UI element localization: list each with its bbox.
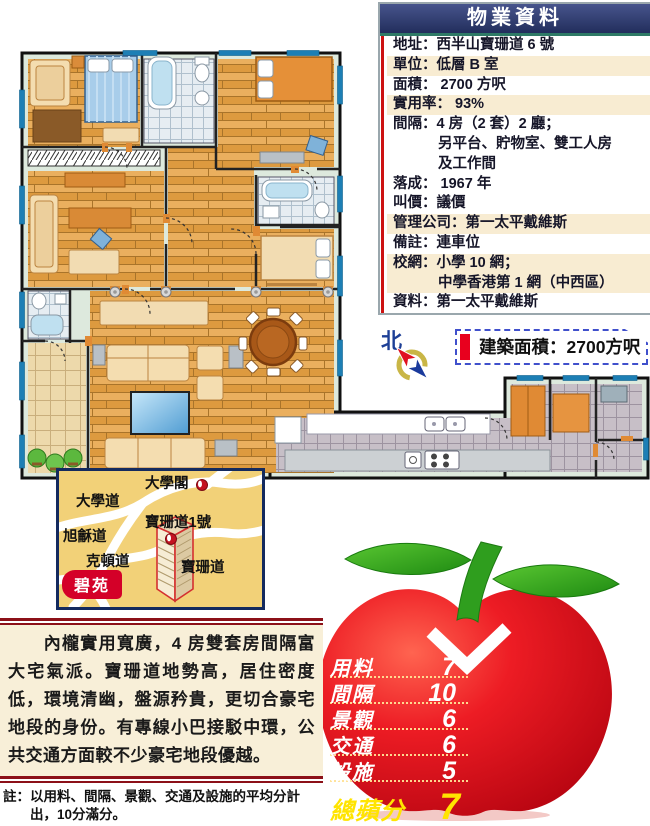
score-value: 7	[442, 653, 468, 682]
north-indicator: 北	[379, 325, 435, 389]
top-divider	[0, 618, 323, 625]
table-row-unit: 單位：低層 B 室	[387, 56, 650, 76]
score-value: 5	[442, 757, 468, 786]
table-row-price: 叫價：議價	[387, 194, 650, 214]
score-row-layout: 間隔 10	[330, 678, 468, 704]
total-score-row: 總蘋分 7	[330, 786, 468, 826]
score-value: 6	[442, 705, 468, 734]
score-row-facilities: 設施 5	[330, 756, 468, 782]
table-row-school-net-2: 中學香港第 1 網（中西區）	[387, 274, 650, 294]
score-list: 用料 7 間隔 10 景觀 6 交通 6 設施 5 總蘋分 7	[330, 652, 468, 826]
score-value: 6	[442, 731, 468, 760]
table-row-source: 資料：第一太平戴維斯	[387, 293, 650, 313]
gross-area-badge: 建築面積：2700方呎	[455, 329, 648, 365]
map-label-university-drive: 大學道	[76, 490, 120, 511]
table-row-layout-3: 及工作間	[387, 155, 650, 175]
score-label: 間隔	[330, 678, 374, 707]
table-row-efficiency: 實用率： 93%	[387, 95, 650, 115]
compass-icon	[389, 340, 435, 386]
review-body: 內櫳實用寬廣，4 房雙套房間隔富大宅氣派。寶珊道地勢高，居住密度低，環境清幽，盤…	[0, 625, 323, 776]
map-label-kotewall-road: 旭龢道	[63, 525, 107, 546]
map-label-clifton-road: 克頓道	[86, 550, 130, 571]
score-label: 景觀	[330, 704, 374, 733]
score-label: 交通	[330, 730, 374, 759]
page: 物業資料 地址：西半山寶珊道 6 號 單位：低層 B 室 面積： 2700 方呎…	[0, 0, 650, 826]
table-title: 物業資料	[380, 4, 650, 36]
table-row-completed: 落成： 1967 年	[387, 175, 650, 195]
table-row-address: 地址：西半山寶珊道 6 號	[387, 36, 650, 56]
score-label: 用料	[330, 652, 374, 681]
table-row-management: 管理公司：第一太平戴維斯	[387, 214, 650, 234]
apple-rating: 用料 7 間隔 10 景觀 6 交通 6 設施 5 總蘋分 7	[295, 538, 650, 823]
map-label-po-shan-road: 寶珊道	[181, 556, 225, 577]
review-box: 內櫳實用寬廣，4 房雙套房間隔富大宅氣派。寶珊道地勢高，居住密度低，環境清幽，盤…	[0, 618, 323, 783]
dining-table	[239, 308, 307, 376]
footnote: 註： 以用料、間隔、景觀、交通及設施的平均分計出，10分滿分。	[3, 788, 333, 824]
score-label: 設施	[330, 756, 374, 785]
table-row-layout-2: 另平台、貯物室、雙工人房	[387, 135, 650, 155]
map-label-po-shan-1: 寶珊道1號	[145, 511, 211, 532]
score-row-transport: 交通 6	[330, 730, 468, 756]
map-label-university-heights: 大學閣	[145, 472, 189, 493]
footnote-prefix: 註：	[3, 788, 30, 824]
table-row-layout: 間隔：4 房（2 套）2 廳；	[387, 115, 650, 135]
total-score-label: 總蘋分	[330, 791, 405, 826]
total-score-value: 7	[439, 786, 468, 826]
property-info-table: 物業資料 地址：西半山寶珊道 6 號 單位：低層 B 室 面積： 2700 方呎…	[378, 2, 650, 315]
review-paragraph: 內櫳實用寬廣，4 房雙套房間隔富大宅氣派。寶珊道地勢高，居住密度低，環境清幽，盤…	[8, 630, 315, 770]
gross-area-text: 建築面積：2700方呎	[479, 331, 640, 363]
table-row-remarks: 備註：連車位	[387, 234, 650, 254]
badge-red-bar	[460, 334, 470, 360]
table-row-school-net: 校網：小學 10 網；	[387, 254, 650, 274]
bedroom-4-furniture	[261, 236, 333, 286]
table-row-area: 面積： 2700 方呎	[387, 76, 650, 96]
bottom-divider	[0, 776, 323, 783]
location-map: 大學閣 大學道 寶珊道1號 旭龢道 克頓道 寶珊道 碧苑	[56, 468, 265, 610]
score-row-view: 景觀 6	[330, 704, 468, 730]
table-body: 地址：西半山寶珊道 6 號 單位：低層 B 室 面積： 2700 方呎 實用率：…	[380, 36, 650, 313]
tv	[131, 392, 189, 434]
wardrobe-hatched	[28, 150, 160, 166]
score-row-materials: 用料 7	[330, 652, 468, 678]
score-value: 10	[428, 679, 468, 708]
estate-name-badge: 碧苑	[62, 570, 122, 599]
footnote-text: 以用料、間隔、景觀、交通及設施的平均分計出，10分滿分。	[30, 788, 302, 824]
